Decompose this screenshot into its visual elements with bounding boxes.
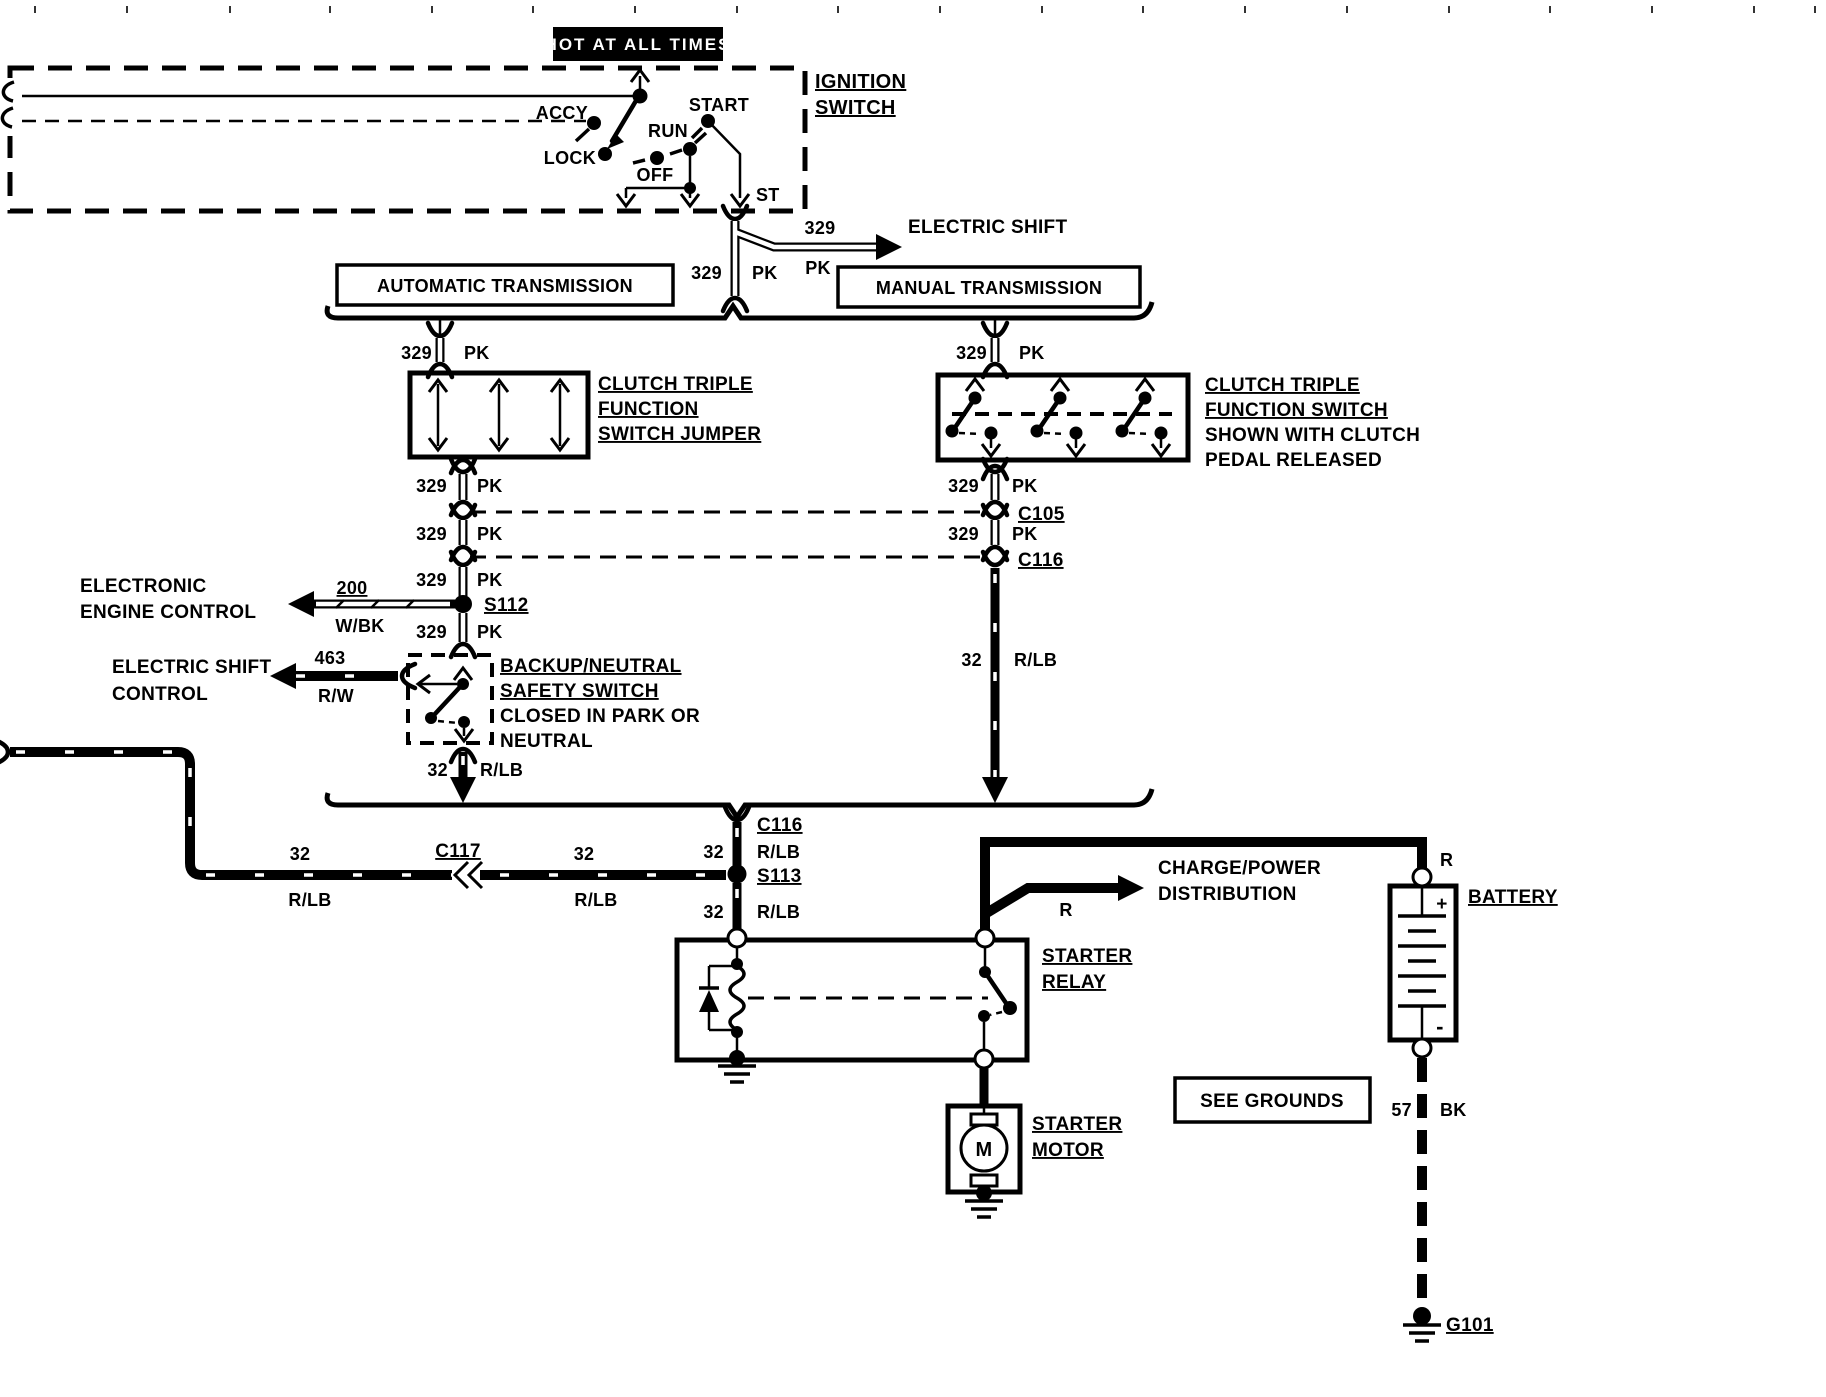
wire-color: PK: [464, 343, 490, 363]
motor-brush: [971, 1175, 997, 1186]
backup-label-line1: BACKUP/NEUTRAL: [500, 656, 682, 677]
wire-num: 32: [703, 902, 724, 922]
battery-ground-circuit: 57 BK G101: [1391, 1058, 1493, 1341]
wiring-diagram-page: HOT AT ALL TIMES ACCY LOCK OFF RUN START: [0, 0, 1826, 1392]
switch-arm: [434, 687, 460, 715]
battery-feed-circuit: R CHARGE/POWER DISTRIBUTION R: [985, 842, 1453, 930]
wire-num: 32: [427, 760, 448, 780]
diode-icon: [699, 990, 719, 1012]
switch-dash-link: [438, 721, 458, 723]
clutch-switch-label-line1: CLUTCH TRIPLE: [1205, 375, 1360, 396]
ignition-title-line1: IGNITION: [815, 71, 906, 93]
arrow-right-icon: [1118, 875, 1144, 901]
start-label: START: [689, 95, 749, 115]
clutch-switch-note-line1: SHOWN WITH CLUTCH: [1205, 425, 1420, 446]
wire-color: PK: [752, 263, 778, 283]
wire-num: 329: [691, 263, 722, 283]
switch-contact: [458, 716, 470, 728]
wire-num: 32: [574, 844, 595, 864]
wire-color: PK: [1019, 343, 1045, 363]
battery-minus-sign: -: [1436, 1014, 1444, 1039]
motor-label-line1: STARTER: [1032, 1114, 1122, 1135]
arrow-down-icon: [982, 777, 1008, 803]
wire-num: 329: [956, 343, 987, 363]
motor-label-line2: MOTOR: [1032, 1140, 1104, 1161]
run-label: RUN: [648, 121, 688, 141]
wire-num: 329: [948, 524, 979, 544]
wire-num: 329: [948, 476, 979, 496]
automatic-transmission-label: AUTOMATIC TRANSMISSION: [377, 276, 633, 296]
s113-label: S113: [757, 866, 802, 887]
relay-terminal: [975, 1050, 993, 1068]
arrow-left-icon: [270, 663, 296, 689]
charge-label-line2: DISTRIBUTION: [1158, 884, 1297, 905]
st-terminal-label: ST: [756, 185, 780, 205]
start-output-wire: [708, 121, 740, 198]
off-label: OFF: [637, 165, 674, 185]
lock-label: LOCK: [544, 148, 596, 168]
jumper-label-line1: CLUTCH TRIPLE: [598, 374, 753, 395]
clutch-switch-unit: [1116, 379, 1171, 456]
wire-32-feed: [10, 752, 726, 875]
jumper-label-line2: FUNCTION: [598, 399, 699, 420]
eec-label-line2: ENGINE CONTROL: [80, 602, 256, 623]
wire-num: 57: [1391, 1100, 1412, 1120]
wire-color: PK: [477, 524, 503, 544]
backup-neutral-safety-switch: BACKUP/NEUTRAL SAFETY SWITCH CLOSED IN P…: [408, 655, 700, 752]
c105-label: C105: [1018, 504, 1065, 525]
esc-label-line1: ELECTRIC SHIFT: [112, 657, 271, 678]
switch-contact: [978, 1010, 990, 1022]
backup-label-line2: SAFETY SWITCH: [500, 681, 659, 702]
charge-label-line1: CHARGE/POWER: [1158, 858, 1321, 879]
relay-label-line1: STARTER: [1042, 946, 1132, 967]
jumper-contact-arrows: [429, 380, 569, 450]
lock-contact: [598, 147, 612, 161]
arrow-right-icon: [876, 234, 902, 260]
esc-label-line2: CONTROL: [112, 684, 208, 705]
s112-label: S112: [484, 595, 529, 616]
clutch-switch-label-line2: FUNCTION SWITCH: [1205, 400, 1388, 421]
wire-color: R: [1059, 900, 1072, 920]
switch-dash-link: [990, 1012, 1002, 1015]
wire-color: R/LB: [288, 890, 331, 910]
relay-terminal: [728, 929, 746, 947]
relay-label-line2: RELAY: [1042, 972, 1106, 993]
wire-color: PK: [477, 476, 503, 496]
wire-num: 329: [416, 622, 447, 642]
wire-R-branch: [985, 888, 1126, 914]
off-contact: [650, 151, 664, 165]
wire-num: 329: [805, 218, 836, 238]
clutch-switch-unit: [1031, 379, 1086, 456]
backup-switch-output: 32 R/LB: [427, 749, 523, 803]
s113-splice-area: C116 32 R/LB S113 32 R/LB: [703, 807, 802, 930]
wire-color: PK: [477, 570, 503, 590]
wire-num: 329: [416, 524, 447, 544]
left-feed-circuit: 32 R/LB C117 32 R/LB: [0, 740, 726, 910]
wire-num: 32: [703, 842, 724, 862]
battery-label: BATTERY: [1468, 887, 1558, 908]
electric-shift-control-takeoff: 463 R/W ELECTRIC SHIFT CONTROL: [112, 648, 415, 706]
relay-terminal: [976, 929, 994, 947]
starter-ignition-wiring-diagram: HOT AT ALL TIMES ACCY LOCK OFF RUN START: [0, 0, 1826, 1392]
relay-switch-arm: [985, 972, 1008, 1006]
motor-letter: M: [976, 1139, 993, 1161]
accy-label: ACCY: [536, 103, 588, 123]
manual-branch: 329 PK: [938, 318, 1420, 803]
clutch-switch-unit: [946, 379, 1001, 456]
battery-terminal: [1413, 868, 1431, 886]
wire-num: 32: [290, 844, 311, 864]
wire-num: 200: [337, 578, 368, 598]
accy-contact-tail: [576, 129, 589, 141]
battery-plus-sign: +: [1436, 894, 1447, 915]
c116-label: C116: [757, 815, 803, 836]
switch-contact: [1003, 1001, 1017, 1015]
wire-color: R/LB: [757, 842, 800, 862]
page-ruler-ticks: [35, 6, 1815, 13]
wire-color: PK: [1012, 524, 1038, 544]
connector-claw-icon: [0, 740, 8, 764]
accy-contact: [587, 116, 601, 130]
wire-color: R/LB: [574, 890, 617, 910]
offpage-electric-shift-label: ELECTRIC SHIFT: [908, 217, 1067, 238]
wire-color: W/BK: [335, 616, 384, 636]
ignition-switch: ACCY LOCK OFF RUN START ST IGNITION SWIT…: [2, 68, 906, 211]
ground-icon: [718, 1066, 756, 1082]
off-arc-dash: [670, 150, 682, 154]
c117-label: C117: [435, 841, 481, 862]
ignition-title-line2: SWITCH: [815, 97, 896, 119]
lower-merge-bracket: [327, 789, 1152, 817]
ground-icon: [965, 1201, 1003, 1217]
arrow-down-icon: [450, 777, 476, 803]
ground-junction-dot: [1413, 1307, 1431, 1325]
s112-splice-dot: [454, 595, 472, 613]
wire-color: BK: [1440, 1100, 1467, 1120]
hot-banner-label: HOT AT ALL TIMES: [545, 35, 732, 54]
wire-color: R: [1440, 850, 1453, 870]
wire-num: 329: [416, 476, 447, 496]
relay-coil-icon: [730, 966, 744, 1030]
see-grounds-reference: SEE GROUNDS: [1175, 1078, 1370, 1122]
wire-color: R/LB: [1014, 650, 1057, 670]
switch-contact: [425, 712, 437, 724]
arrow-left-icon: [288, 591, 314, 617]
wire-color: PK: [477, 622, 503, 642]
c116-label: C116: [1018, 550, 1064, 571]
manual-transmission-label: MANUAL TRANSMISSION: [876, 278, 1102, 298]
wire-hatch: [16, 752, 722, 875]
motor-brush: [971, 1114, 997, 1125]
run-contact: [683, 142, 697, 156]
transmission-variants: AUTOMATIC TRANSMISSION MANUAL TRANSMISSI…: [327, 265, 1152, 318]
off-arc-dash: [633, 160, 645, 163]
ground-icon: [1403, 1325, 1441, 1341]
automatic-branch: 329 PK CLUTCH TRIPLE FUNCTION SWITCH JUM…: [401, 318, 761, 596]
jumper-label-line3: SWITCH JUMPER: [598, 424, 761, 445]
wire-num: 32: [961, 650, 982, 670]
power-source-banner: HOT AT ALL TIMES: [545, 27, 732, 61]
wire-num: 463: [315, 648, 346, 668]
starter-motor: M STARTER MOTOR: [948, 1068, 1122, 1217]
battery-terminal: [1413, 1039, 1431, 1057]
g101-label: G101: [1446, 1315, 1494, 1336]
wire-num: 329: [416, 570, 447, 590]
wire-color: R/LB: [480, 760, 523, 780]
wire-color: R/W: [318, 686, 354, 706]
s113-splice-dot: [728, 865, 747, 884]
starter-relay-box: [677, 940, 1027, 1060]
see-grounds-label: SEE GROUNDS: [1200, 1091, 1344, 1112]
starter-relay: STARTER RELAY: [677, 929, 1132, 1082]
ground-junction-dot: [976, 1185, 992, 1201]
backup-note-line2: NEUTRAL: [500, 731, 593, 752]
ground-junction-dot: [729, 1050, 745, 1066]
eec-label-line1: ELECTRONIC: [80, 576, 207, 597]
wire-color: R/LB: [757, 902, 800, 922]
rotor-arrow-icon: [607, 134, 624, 149]
wire-num: 329: [401, 343, 432, 363]
clutch-switch-note-line2: PEDAL RELEASED: [1205, 450, 1382, 471]
backup-note-line1: CLOSED IN PARK OR: [500, 706, 700, 727]
battery: + - BATTERY: [1390, 868, 1558, 1057]
wire-color: PK: [805, 258, 831, 278]
wire-color: PK: [1012, 476, 1038, 496]
